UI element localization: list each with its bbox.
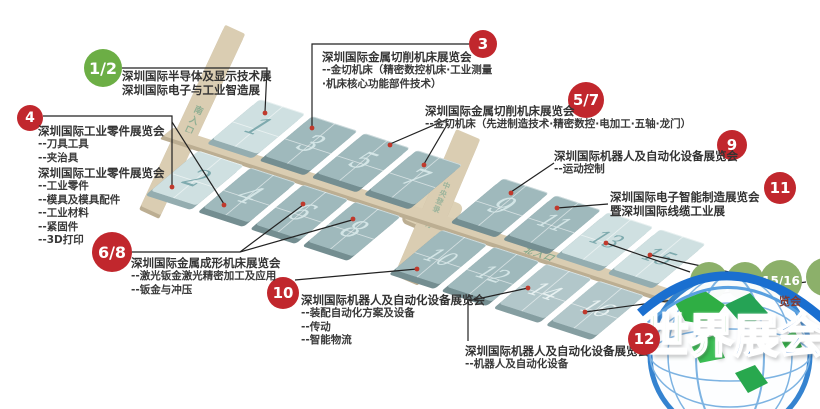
- hall-number: 7: [393, 163, 437, 192]
- exhibit-bullet: ·机床核心功能部件技术）: [322, 78, 492, 92]
- hall-number: 13: [583, 227, 630, 253]
- exhibit-label-4b: 深圳国际工业零件展览会 --工业零件 --模具及模具配件 --工业材料 --紧固…: [38, 166, 165, 248]
- exhibit-label-1-2: 深圳国际半导体及显示技术展 深圳国际电子与工业智造展: [122, 69, 272, 97]
- exhibit-label-3: 深圳国际金属切削机床展览会 --金切机床（精密数控机床·工业测量 ·机床核心功能…: [322, 50, 492, 91]
- exhibition-floorplan: 南入口 中央登录大厅 北入口 13579111315246810121416 1…: [0, 0, 820, 409]
- exhibit-bullet: --激光钣金激光精密加工及应用: [131, 270, 281, 284]
- exhibit-bullet: --金切机床（先进制造技术·精密数控·电加工·五轴·龙门）: [425, 118, 691, 132]
- exhibit-title: 深圳国际机器人及自动化设备展览会: [465, 344, 649, 358]
- hall-number: 2: [175, 164, 219, 193]
- exhibit-title: 暨深圳国际线缆工业展: [610, 204, 760, 218]
- world-expo-watermark: 世界展会: [643, 300, 820, 366]
- exhibit-label-12: 深圳国际机器人及自动化设备展览会 --机器人及自动化设备: [465, 344, 649, 372]
- hall-number: 5: [341, 146, 385, 175]
- badge-hall-12: 12: [628, 323, 660, 355]
- hall-number: 10: [417, 244, 464, 270]
- exhibit-bullet: --3D打印: [38, 234, 165, 248]
- exhibit-title: 深圳国际金属成形机床展览会: [131, 256, 281, 270]
- exhibit-bullet: --模具及模具配件: [38, 194, 165, 208]
- exhibit-bullet: --刀具工具: [38, 138, 165, 152]
- exhibit-title: 深圳国际半导体及显示技术展: [122, 69, 272, 83]
- exhibit-title: 深圳国际工业零件展览会: [38, 166, 165, 180]
- exhibit-bullet: --机器人及自动化设备: [465, 358, 649, 372]
- exhibit-bullet: --夹治具: [38, 152, 165, 166]
- hall-number: 8: [332, 215, 376, 244]
- exhibit-bullet: --运动控制: [554, 163, 738, 177]
- exhibit-bullet: --工业材料: [38, 207, 165, 221]
- exhibit-title: 深圳国际机器人及自动化设备展览会: [301, 293, 485, 307]
- exhibit-title: 深圳国际电子智能制造展览会: [610, 190, 760, 204]
- exhibit-bullet: --紧固件: [38, 221, 165, 235]
- badge-hall-1-2: 1/2: [84, 49, 122, 87]
- watermark-text-blue: 展会: [733, 309, 820, 363]
- exhibit-label-4a: 深圳国际工业零件展览会 --刀具工具 --夹治具: [38, 124, 165, 165]
- hall-number: 9: [480, 192, 524, 221]
- exhibit-title: 深圳国际金属切削机床展览会: [322, 50, 492, 64]
- hall-number: 14: [522, 278, 569, 304]
- exhibit-label-9: 深圳国际机器人及自动化设备展览会 --运动控制: [554, 149, 738, 177]
- hall-number: 4: [227, 181, 271, 210]
- exhibit-bullet: --传动: [301, 321, 485, 335]
- exhibit-bullet: --智能物流: [301, 334, 485, 348]
- exhibit-title: 深圳国际电子与工业智造展: [122, 83, 272, 97]
- exhibit-label-6-8: 深圳国际金属成形机床展览会 --激光钣金激光精密加工及应用 --钣金与冲压: [131, 256, 281, 297]
- exhibit-bullet: --工业零件: [38, 180, 165, 194]
- exhibit-title: 深圳国际工业零件展览会: [38, 124, 165, 138]
- exhibit-bullet: --金切机床（精密数控机床·工业测量: [322, 64, 492, 78]
- hall-number: 3: [289, 129, 333, 158]
- exhibit-bullet: --钣金与冲压: [131, 284, 281, 298]
- exhibit-label-5-7: 深圳国际金属切削机床展览会 --金切机床（先进制造技术·精密数控·电加工·五轴·…: [425, 104, 691, 132]
- badge-hall-11: 11: [764, 172, 796, 204]
- hall-number: 1: [236, 112, 280, 141]
- exhibit-title: 深圳国际金属切削机床展览会: [425, 104, 691, 118]
- hall-number: 6: [279, 198, 323, 227]
- hall-number: 11: [531, 210, 578, 236]
- hall-number: 16: [574, 295, 621, 321]
- exhibit-label-10: 深圳国际机器人及自动化设备展览会 --装配自动化方案及设备 --传动 --智能物…: [301, 293, 485, 348]
- exhibit-title: 深圳国际机器人及自动化设备展览会: [554, 149, 738, 163]
- exhibit-label-11: 深圳国际电子智能制造展览会 暨深圳国际线缆工业展: [610, 190, 760, 218]
- hall-number: 12: [469, 261, 516, 287]
- exhibit-bullet: --装配自动化方案及设备: [301, 307, 485, 321]
